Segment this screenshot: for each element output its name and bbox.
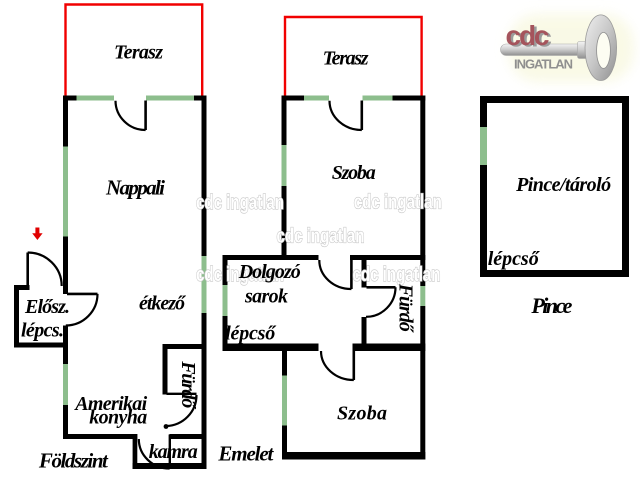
svg-text:Emelet: Emelet (217, 442, 274, 466)
svg-text:INGATLAN: INGATLAN (514, 57, 575, 72)
svg-text:lépcső: lépcső (488, 248, 541, 270)
svg-text:Pince/tároló: Pince/tároló (515, 174, 611, 196)
svg-text:étkező: étkező (139, 293, 187, 315)
svg-text:lépcső: lépcső (225, 323, 277, 345)
svg-text:cdc ingatlan: cdc ingatlan (277, 226, 365, 248)
svg-text:cdc: cdc (506, 20, 550, 51)
svg-text:Fürdő: Fürdő (177, 360, 199, 410)
svg-text:cdc ingatlan: cdc ingatlan (196, 192, 284, 214)
svg-text:Dolgozó: Dolgozó (238, 261, 301, 283)
svg-text:Pince: Pince (530, 293, 572, 318)
svg-text:Földszint: Földszint (38, 449, 109, 473)
svg-text:cdc ingatlan: cdc ingatlan (353, 264, 441, 286)
svg-text:konyha: konyha (89, 407, 147, 429)
svg-text:Elősz.: Elősz. (24, 296, 70, 318)
svg-text:kamra: kamra (149, 441, 198, 463)
svg-text:cdc ingatlan: cdc ingatlan (354, 192, 442, 214)
svg-text:Terasz: Terasz (114, 42, 163, 64)
svg-text:Nappali: Nappali (105, 176, 165, 200)
svg-text:Terasz: Terasz (323, 48, 369, 70)
svg-text:Fürdő: Fürdő (395, 283, 417, 334)
svg-text:Szoba: Szoba (337, 403, 387, 425)
svg-text:Szoba: Szoba (332, 162, 376, 184)
svg-text:sarok: sarok (244, 286, 288, 308)
svg-text:lépcs.: lépcs. (21, 320, 64, 342)
